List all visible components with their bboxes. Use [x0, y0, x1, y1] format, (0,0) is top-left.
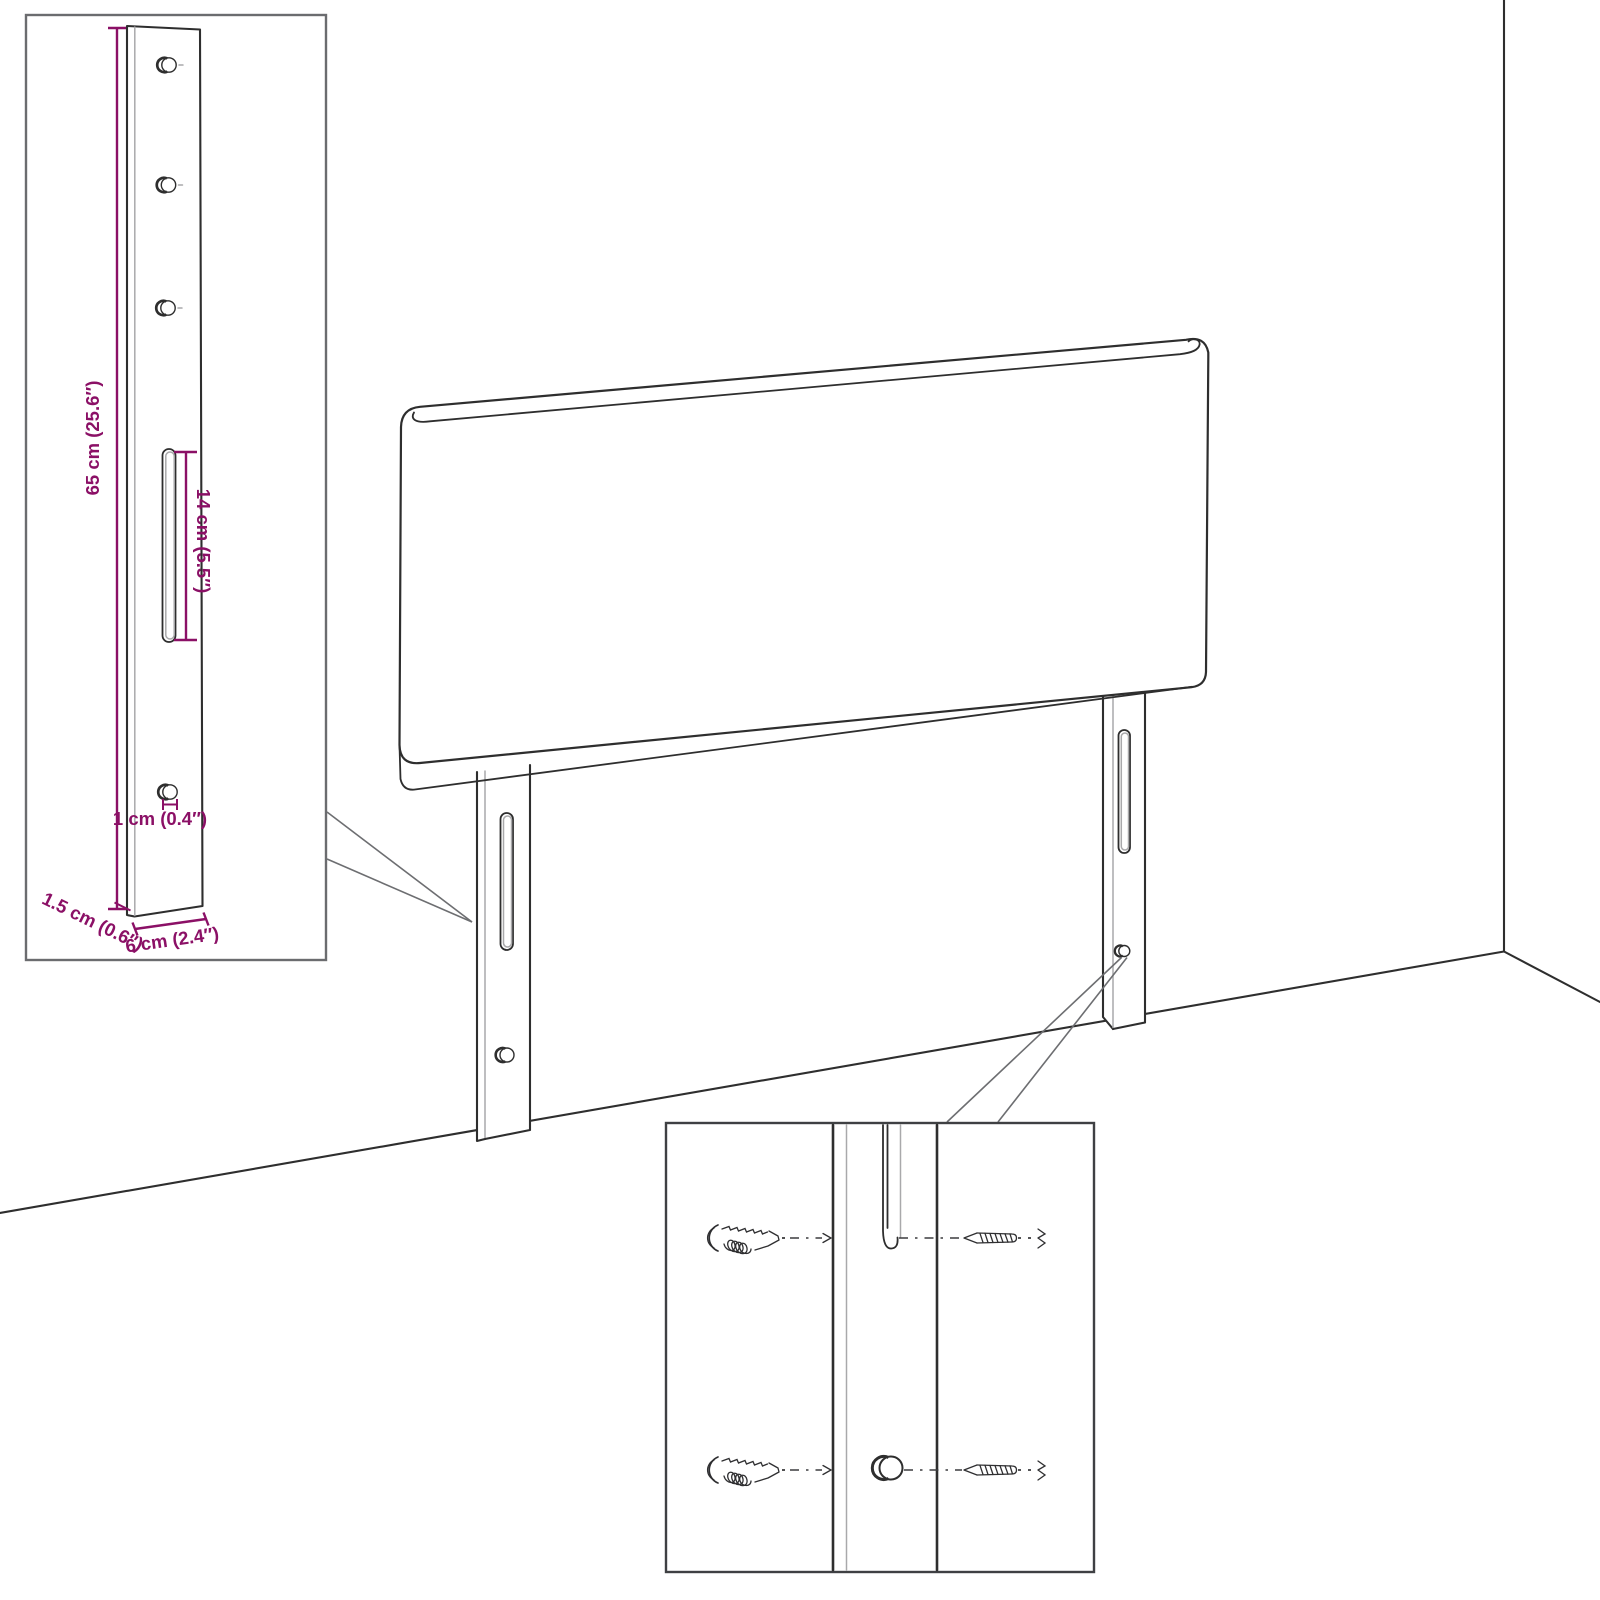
- screw-detail-inset: [666, 1123, 1094, 1572]
- floor-line-right: [1504, 952, 1600, 1003]
- left-leg: [477, 763, 530, 1141]
- height-dimension-label: 65 cm (25.6″): [82, 381, 103, 496]
- callout-line-right-outer: [947, 958, 1122, 1123]
- callout-lines: [327, 812, 1127, 1122]
- headboard-panel-outline: [400, 339, 1209, 763]
- callout-line-left-lower: [327, 859, 472, 922]
- headboard-panel: [400, 339, 1209, 790]
- assembly-diagram-svg: 65 cm (25.6″) 14 cm (5.5″) 1 cm (0.4″) 1…: [0, 0, 1600, 1600]
- callout-line-left-upper: [327, 812, 472, 922]
- assembly-diagram: 65 cm (25.6″) 14 cm (5.5″) 1 cm (0.4″) 1…: [0, 0, 1600, 1600]
- right-leg: [1103, 683, 1145, 1029]
- leg-dimension-inset: 65 cm (25.6″) 14 cm (5.5″) 1 cm (0.4″) 1…: [26, 15, 326, 960]
- callout-line-right-inner: [998, 958, 1127, 1123]
- slot-length-dimension-label: 14 cm (5.5″): [193, 489, 214, 594]
- hole-diameter-dimension-label: 1 cm (0.4″): [113, 808, 207, 829]
- screw-detail-inset-border: [666, 1123, 1094, 1572]
